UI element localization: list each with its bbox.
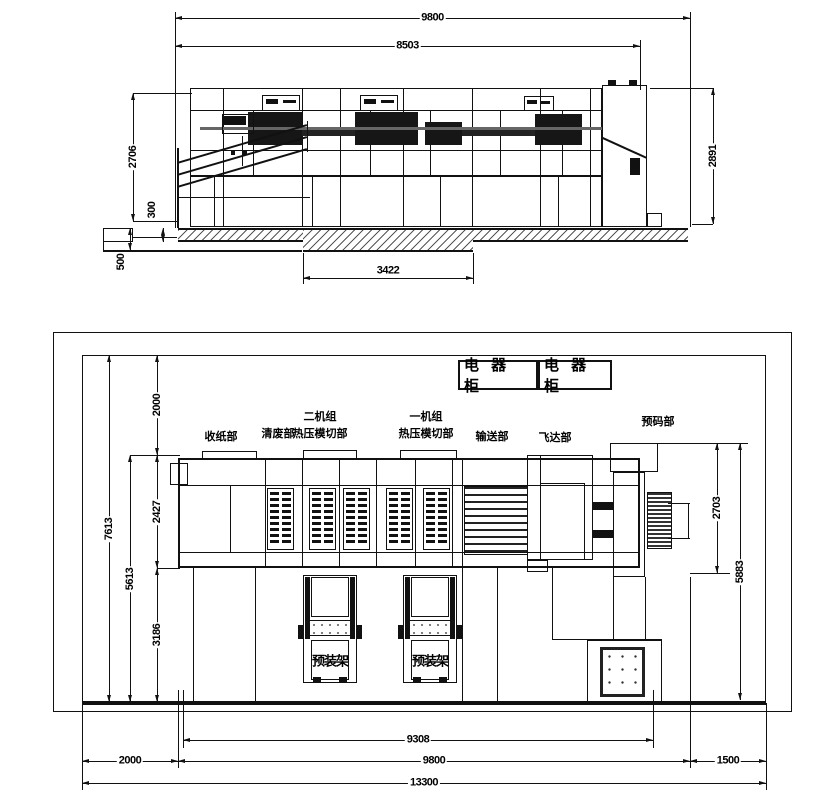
top-block [303, 450, 357, 459]
machine-leg [558, 175, 559, 227]
arrowhead [759, 759, 766, 763]
dim-body_width: 8503 [394, 39, 420, 51]
frame-divider [403, 88, 404, 227]
arrowhead [738, 693, 742, 700]
louver-slats [389, 492, 398, 546]
rack-foot [413, 677, 421, 683]
ext-line [658, 443, 748, 444]
railing-post [242, 136, 243, 166]
solid [540, 101, 550, 104]
arrowhead [178, 759, 185, 763]
v-line [613, 577, 614, 640]
louver-slats [312, 492, 321, 546]
frame-divider [302, 88, 303, 227]
floor-slab [178, 228, 303, 242]
arrowhead [175, 44, 182, 48]
section-label-unit2-line2: 热压模切部 [293, 428, 348, 441]
section-label-prestacker: 预码部 [642, 416, 675, 429]
dim-bottom_margin: 3186 [151, 622, 163, 648]
louver-slats [270, 492, 279, 546]
solid [364, 99, 376, 104]
frame-divider [500, 110, 501, 175]
top-block [202, 451, 257, 459]
v-line [103, 228, 104, 250]
h-line [668, 503, 690, 504]
top-block [400, 450, 457, 459]
panel-divider [265, 458, 266, 568]
arrowhead [633, 44, 640, 48]
rack-label-1: 预装架 [312, 651, 348, 670]
arrowhead [155, 561, 159, 568]
dim-line [303, 278, 473, 279]
section-label-feeder: 飞达部 [539, 432, 572, 445]
solid [283, 100, 296, 103]
h-line [668, 538, 690, 539]
arrowhead [155, 695, 159, 702]
arrowhead [683, 16, 690, 20]
panel-divider [452, 458, 453, 568]
louver-slats [358, 492, 367, 546]
ext-line [473, 253, 474, 284]
ext-line [766, 703, 767, 790]
dim-machine_depth: 2427 [151, 498, 163, 524]
section-label-unit2-line1: 二机组 [293, 411, 348, 424]
arrowhead [82, 781, 89, 785]
arrowhead [303, 276, 310, 280]
v-line [462, 568, 463, 702]
panel-divider [339, 458, 340, 568]
ext-line [690, 12, 691, 227]
electrical-cabinet-2-label: 电 器 柜 [544, 354, 610, 396]
feeder-step [647, 213, 662, 227]
arrowhead [175, 16, 182, 20]
section-label-paper-delivery: 收纸部 [205, 431, 238, 444]
floor-slab-deep [303, 228, 473, 252]
rack-top [311, 577, 349, 617]
dim-left_margin: 2000 [117, 754, 143, 766]
arrowhead [738, 443, 742, 450]
arrowhead [131, 93, 135, 100]
arrowhead [171, 759, 178, 763]
feeder-inner [540, 483, 585, 560]
arrowhead [107, 695, 111, 702]
room-bottom-edge [82, 702, 766, 705]
prestacker-body [613, 472, 645, 577]
dim-overall_width: 9800 [419, 11, 445, 23]
conveyor-line [200, 127, 602, 130]
arrowhead [131, 214, 135, 221]
frame-divider [223, 88, 224, 227]
arrowhead [715, 443, 719, 450]
arrowhead [466, 276, 473, 280]
ext-line [692, 224, 713, 225]
solid [266, 99, 278, 104]
electrical-cabinet-2: 电 器 柜 [538, 360, 612, 390]
v-line [552, 568, 553, 639]
prestacker-grate [647, 492, 672, 549]
solid [381, 100, 394, 103]
side-column [170, 463, 188, 485]
ext-line [653, 690, 654, 748]
solid [527, 100, 537, 104]
floor-slab [473, 228, 688, 242]
connector [593, 530, 613, 538]
arrowhead [107, 355, 111, 362]
dim-pit_depth: 500 [115, 252, 127, 273]
arrowhead [155, 355, 159, 362]
rack-foot [339, 677, 347, 683]
dim-room_width: 9800 [421, 754, 447, 766]
dim-slab_step: 300 [146, 200, 158, 221]
rack-tray [309, 620, 351, 636]
knob [231, 151, 235, 155]
conveyor-rollers [464, 486, 528, 555]
prestacker-head [610, 443, 658, 472]
v-line [645, 577, 646, 640]
dim-site_height: 7613 [103, 515, 115, 541]
left-step [103, 228, 133, 242]
section-label-unit1: 一机组 热压模切部 [399, 411, 454, 441]
electrical-cabinet-1: 电 器 柜 [458, 360, 538, 390]
dim-top_margin: 2000 [151, 392, 163, 418]
dim-total_width: 13300 [408, 776, 440, 788]
louver-slats [282, 492, 291, 546]
arrowhead [128, 695, 132, 702]
section-label-waste-removal: 清废部 [262, 428, 295, 441]
rack-top [411, 577, 449, 617]
dim-right_span: 5883 [734, 558, 746, 584]
feeder-panel [630, 158, 640, 175]
v-line [255, 568, 256, 702]
frame-divider [472, 88, 473, 227]
ext-line [157, 568, 180, 569]
louver-slats [401, 492, 410, 546]
ext-line [178, 690, 179, 768]
dim-body_height: 2706 [127, 144, 139, 170]
arrowhead [128, 243, 132, 250]
solid [629, 80, 637, 86]
v-line [497, 568, 498, 702]
louver-slats [346, 492, 355, 546]
solid [224, 116, 246, 125]
ext-line [133, 93, 192, 94]
v-line [688, 503, 689, 538]
ext-line [690, 573, 730, 574]
arrowhead [715, 566, 719, 573]
railing-post [307, 121, 308, 152]
panel-divider [462, 458, 463, 568]
dim-pit_width: 3422 [375, 264, 401, 276]
rack-tab [298, 625, 303, 639]
arrowhead [183, 738, 190, 742]
rack-tab [357, 625, 362, 639]
rack-label-2: 预装架 [412, 651, 448, 670]
v-line [230, 486, 231, 552]
pit-floor [103, 250, 302, 252]
section-label-unit2: 二机组 热压模切部 [293, 411, 348, 441]
arrowhead [155, 448, 159, 455]
ext-line [640, 40, 641, 90]
electrical-cabinet-1-label: 电 器 柜 [464, 354, 536, 396]
panel-divider [302, 458, 303, 568]
panel-divider [415, 458, 416, 568]
ext-line [690, 577, 691, 768]
arrowhead [128, 455, 132, 462]
dim-right_margin: 1500 [715, 754, 741, 766]
arrowhead [161, 228, 165, 235]
cad-drawing: 9800850327063005002891342276135613200024… [0, 0, 822, 803]
rack-tab [457, 625, 462, 639]
machine-leg [440, 175, 441, 227]
railing-post [177, 148, 179, 228]
section-label-unit1-line1: 一机组 [399, 411, 454, 424]
pallet [600, 647, 645, 697]
arrowhead [711, 88, 715, 95]
arrowhead [759, 781, 766, 785]
arrowhead [155, 455, 159, 462]
rack-foot [313, 677, 321, 683]
louver-slats [324, 492, 333, 546]
ext-line [82, 703, 83, 790]
connector [593, 502, 613, 510]
arrowhead [711, 217, 715, 224]
v-line [193, 568, 194, 702]
arrowhead [683, 759, 690, 763]
section-label-conveyor: 输送部 [476, 431, 509, 444]
rack-foot [439, 677, 447, 683]
frame-divider [590, 88, 591, 227]
rack-tray [409, 620, 451, 636]
machine-leg [214, 175, 215, 227]
ext-line [133, 221, 178, 222]
louver-slats [438, 492, 447, 546]
die-unit [425, 122, 462, 145]
section-label-unit1-line2: 热压模切部 [399, 428, 454, 441]
arrowhead [646, 738, 653, 742]
solid [608, 80, 616, 86]
arrowhead [690, 759, 697, 763]
frame-divider [340, 88, 341, 227]
h-line [133, 237, 177, 238]
dim-inner_height: 5613 [124, 565, 136, 591]
arrowhead [155, 568, 159, 575]
ext-line [650, 88, 713, 89]
platform-edge [177, 197, 310, 198]
rack-tab [398, 625, 403, 639]
dim-stacker_depth: 2703 [711, 495, 723, 521]
dim-feeder_height: 2891 [707, 143, 719, 169]
feeder-foot [527, 560, 548, 572]
dim-machine_length: 9308 [405, 733, 431, 745]
panel-divider [376, 458, 377, 568]
louver-slats [426, 492, 435, 546]
arrowhead [82, 759, 89, 763]
machine-leg [312, 175, 313, 227]
